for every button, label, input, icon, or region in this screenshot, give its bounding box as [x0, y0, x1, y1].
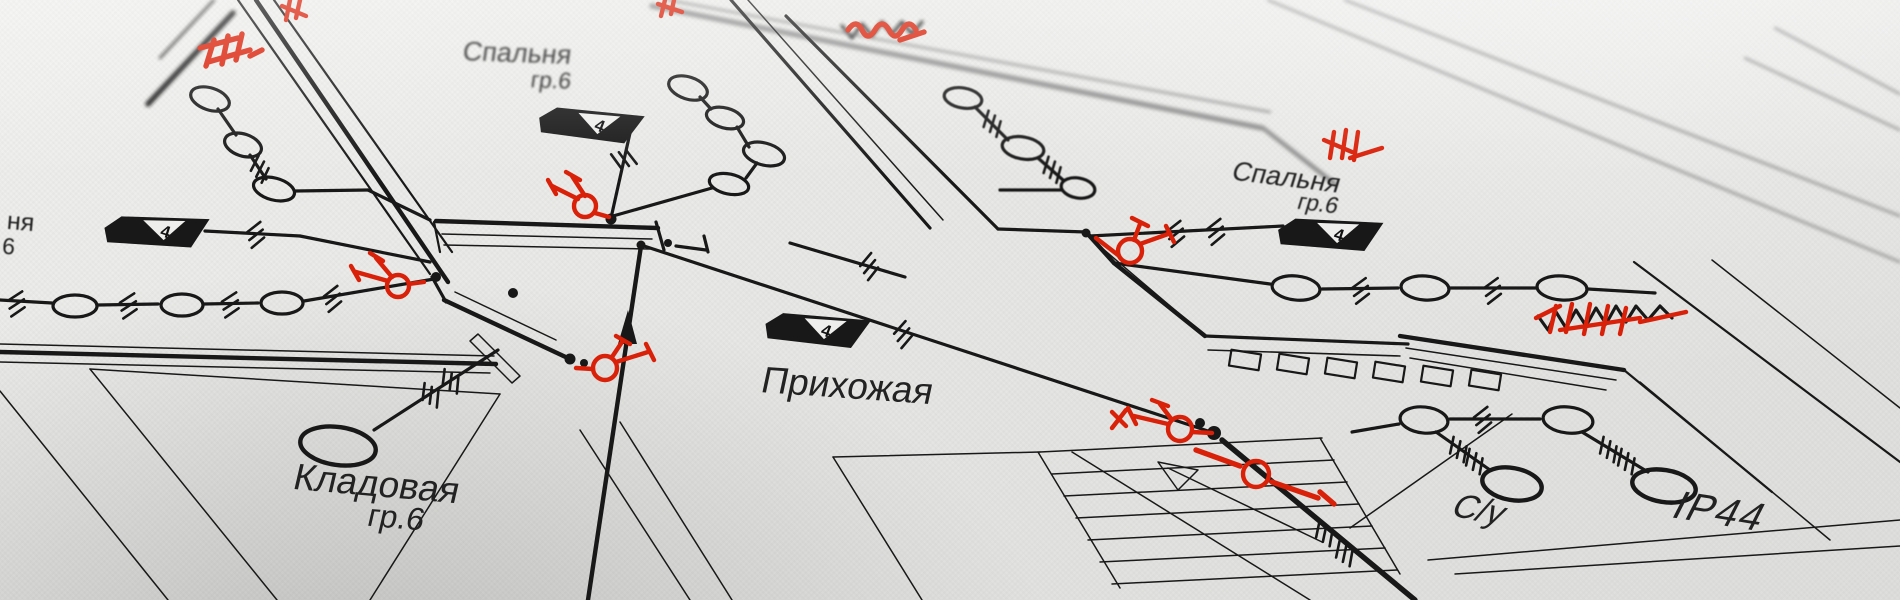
- stair-direction-arrow-icon: [1158, 462, 1198, 490]
- room-label-clipped-2: 6: [1, 233, 16, 260]
- floor-plan-drawing: 4: [0, 0, 1900, 600]
- label-ip44: IP44: [1665, 483, 1776, 539]
- photo-light-glare: [0, 0, 1900, 180]
- room-label-bathroom: С/у: [1445, 487, 1515, 532]
- room-label-hallway: Прихожая: [758, 359, 938, 412]
- room-label-bedroom2-group: гр.6: [1295, 188, 1343, 218]
- floor-plan-photo: 4: [0, 0, 1900, 600]
- stairs-icon: [1038, 438, 1400, 600]
- room-label-storage-group: гр.6: [364, 497, 428, 537]
